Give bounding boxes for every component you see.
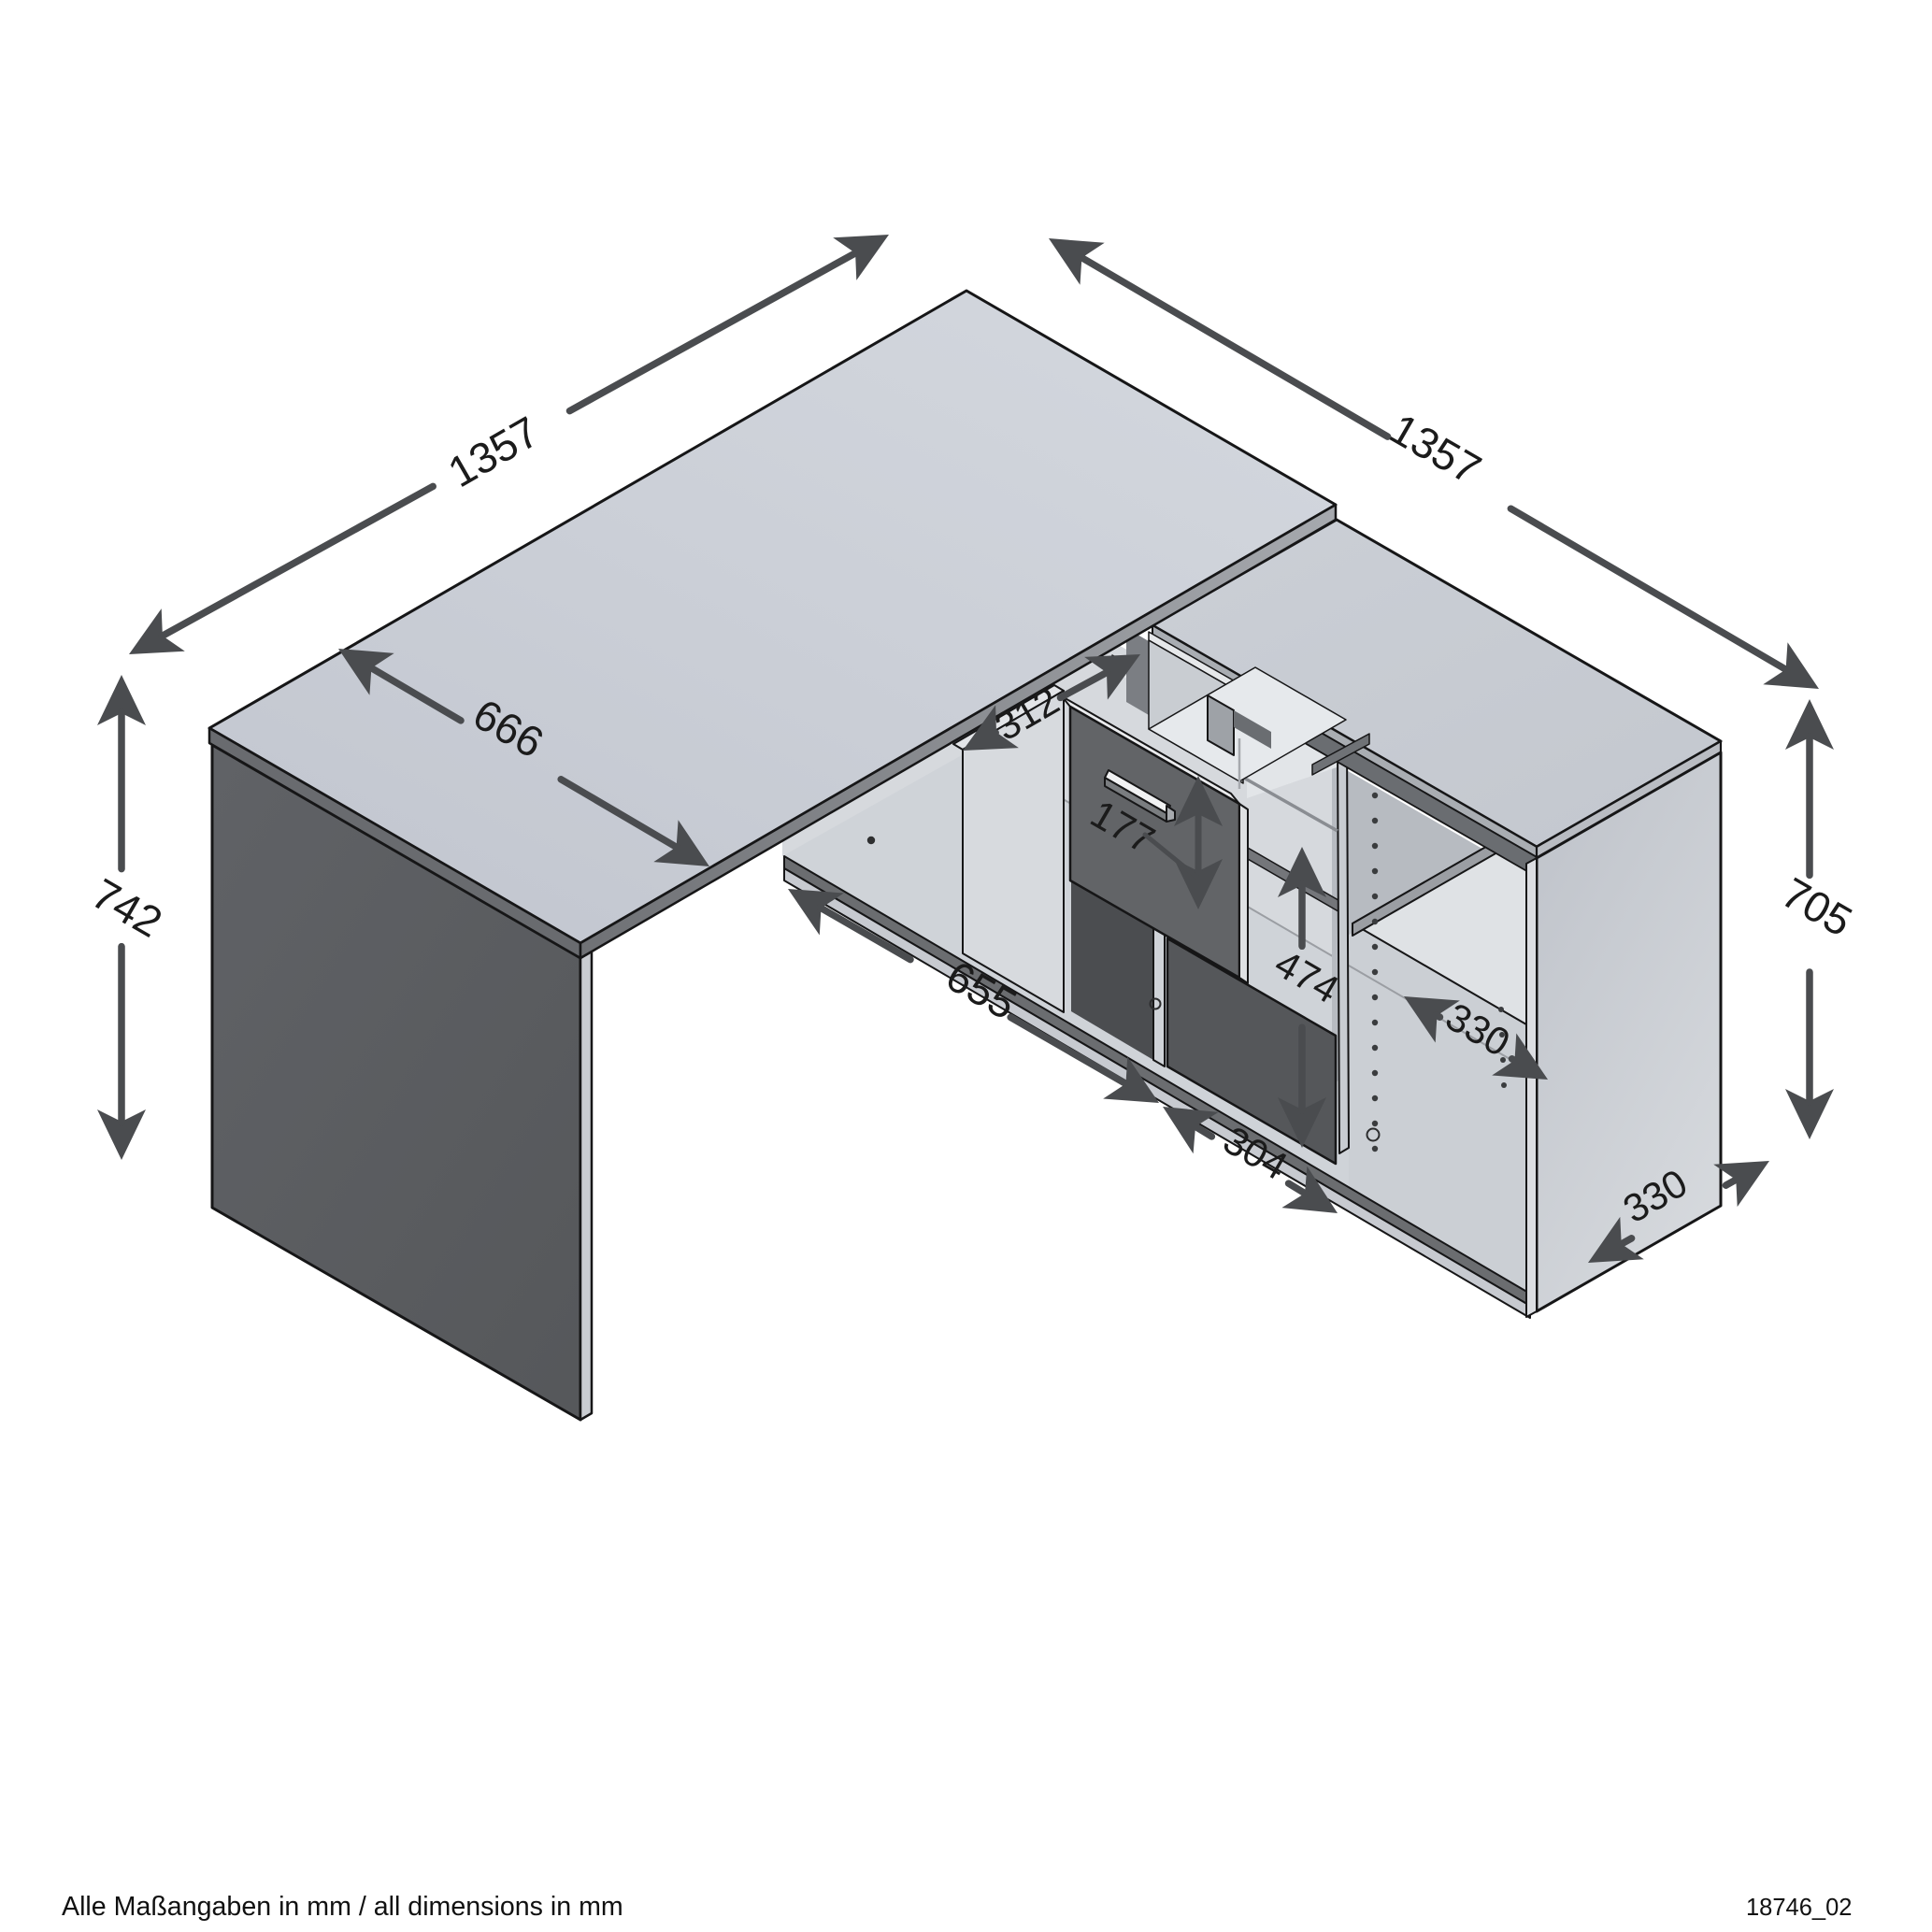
- svg-text:Alle Maßangaben in mm / all di: Alle Maßangaben in mm / all dimensions i…: [62, 1892, 623, 1922]
- svg-text:18746_02: 18746_02: [1746, 1895, 1852, 1921]
